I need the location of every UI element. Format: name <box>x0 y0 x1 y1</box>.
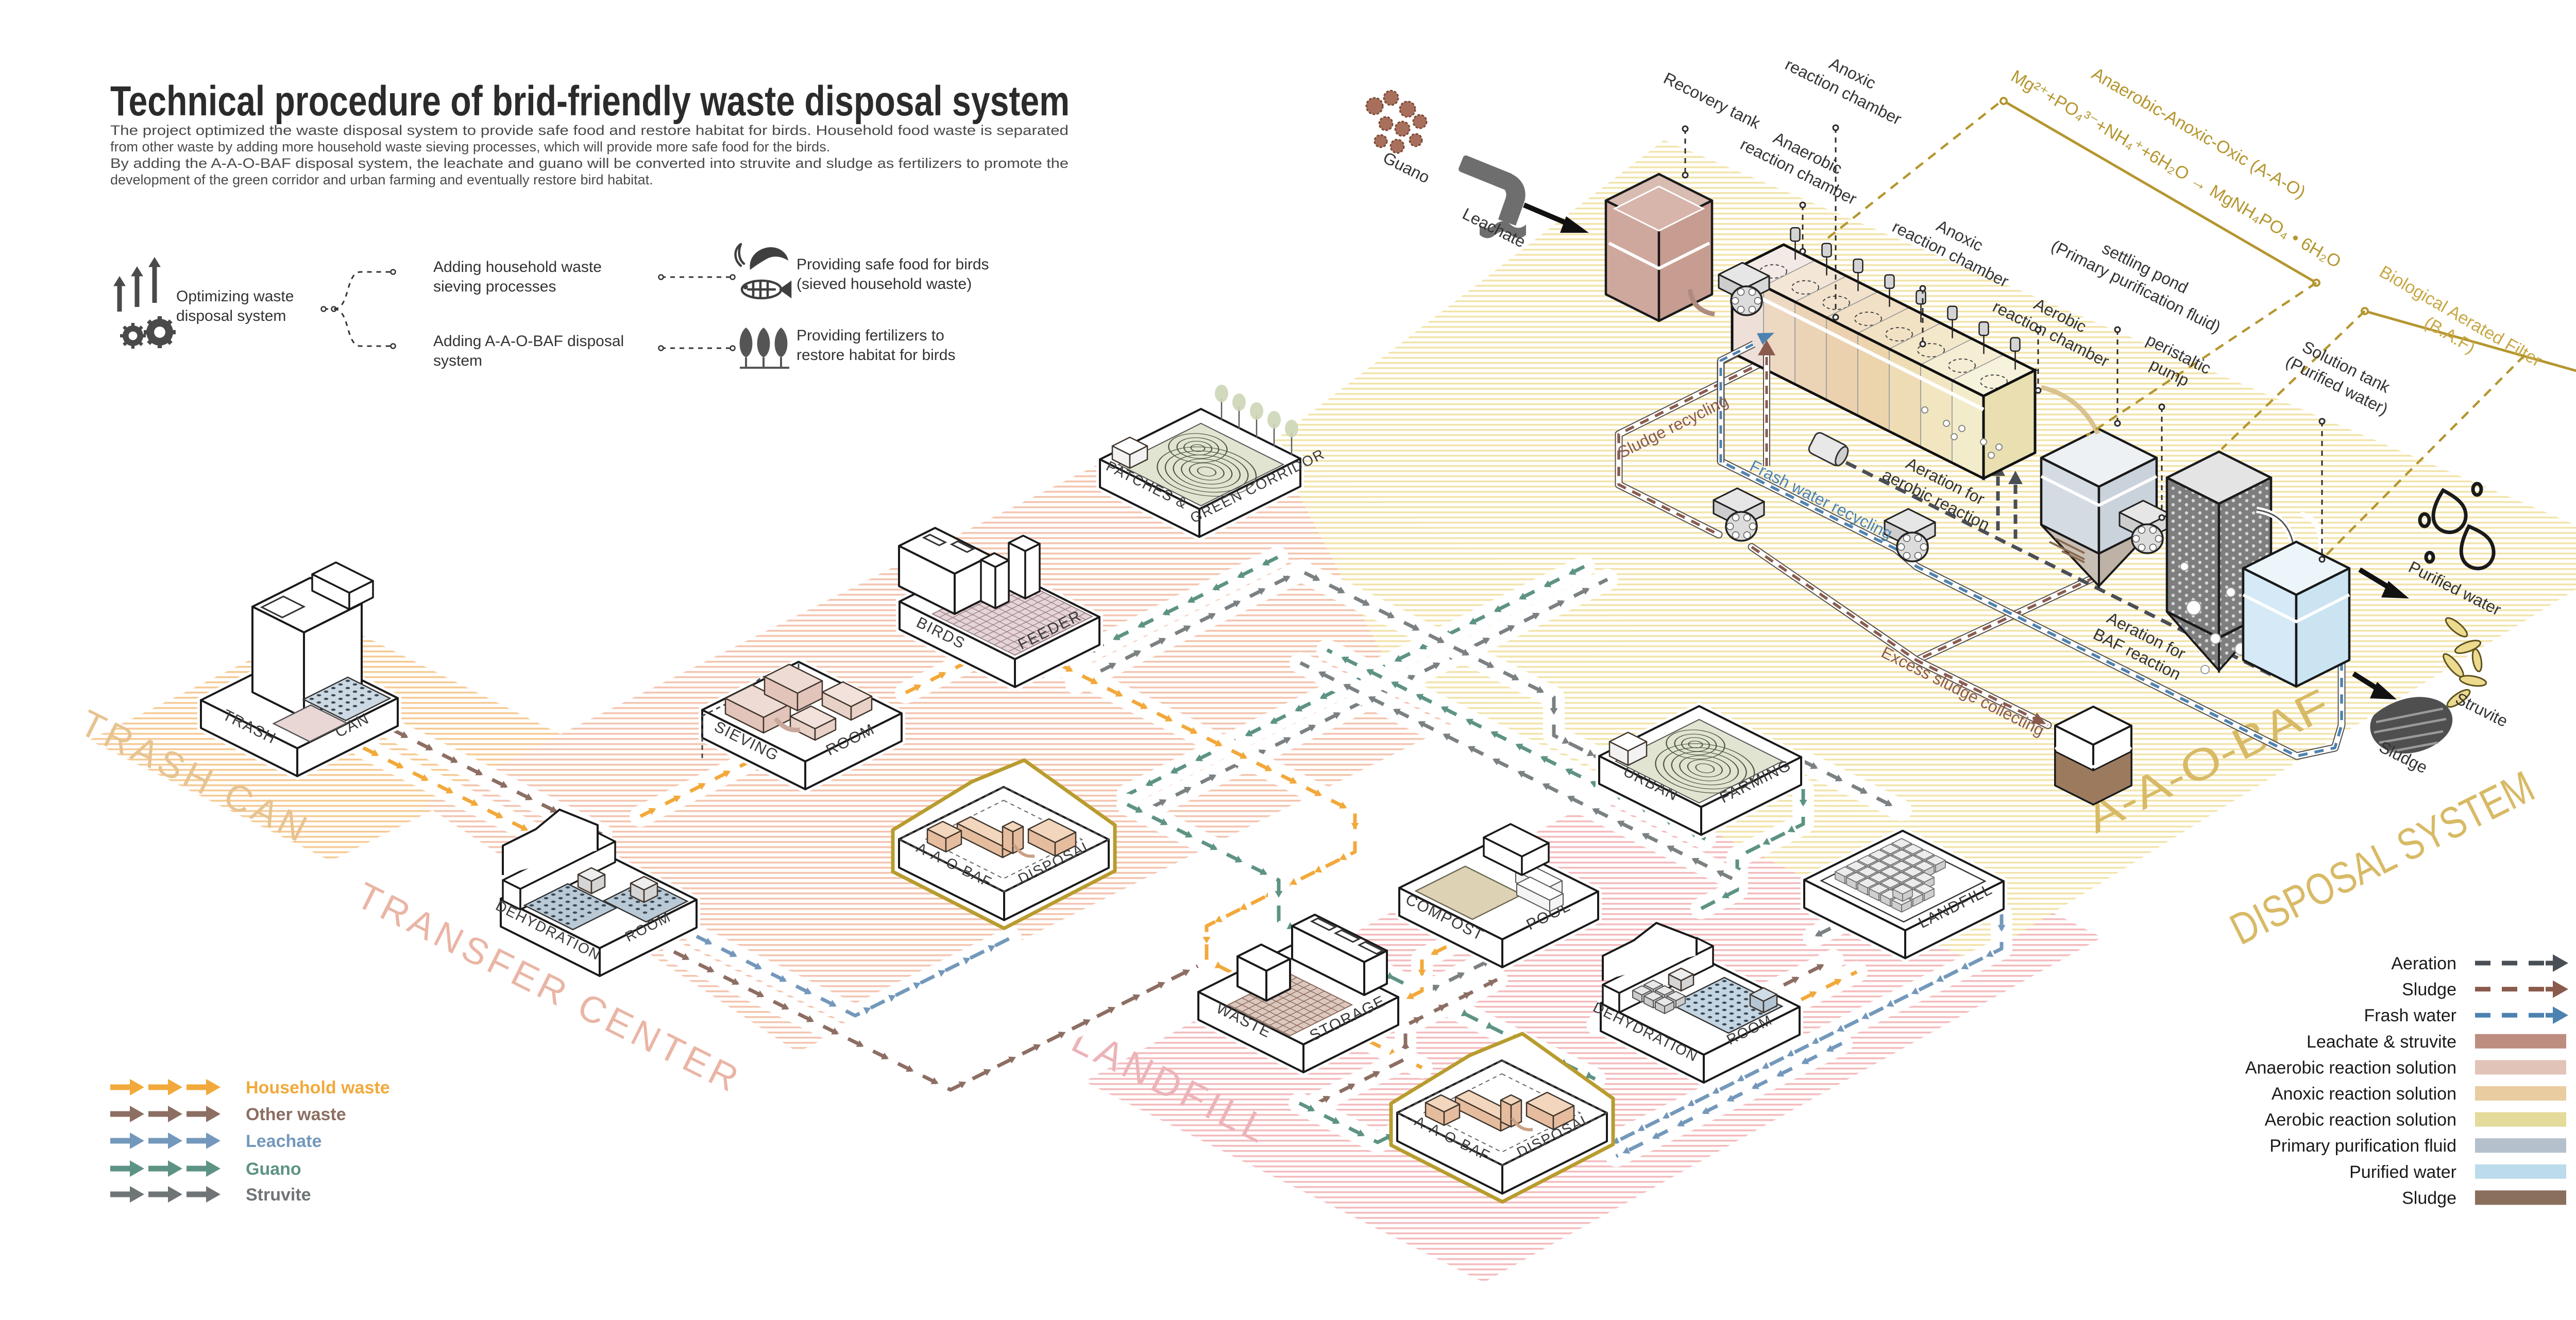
svg-text:Aeration: Aeration <box>2391 954 2456 973</box>
svg-text:Anoxic reaction solution: Anoxic reaction solution <box>2272 1084 2456 1104</box>
svg-text:Providing safe food for birds: Providing safe food for birds <box>796 256 989 273</box>
svg-text:development of the green corri: development of the green corridor and ur… <box>110 172 653 187</box>
svg-text:Sludge: Sludge <box>2402 980 2456 1000</box>
svg-text:Household waste: Household waste <box>246 1078 390 1098</box>
svg-text:from other waste by adding mor: from other waste by adding more househol… <box>110 139 830 155</box>
svg-text:Struvite: Struvite <box>246 1185 311 1205</box>
svg-text:(sieved household waste): (sieved household waste) <box>796 276 972 293</box>
svg-text:Guano: Guano <box>246 1159 301 1179</box>
svg-text:Other waste: Other waste <box>246 1105 346 1124</box>
svg-text:system: system <box>433 352 482 369</box>
svg-text:Anaerobic reaction solution: Anaerobic reaction solution <box>2245 1058 2456 1077</box>
svg-text:The project optimized the wast: The project optimized the waste disposal… <box>110 123 1069 138</box>
svg-text:Primary purification fluid: Primary purification fluid <box>2269 1136 2456 1156</box>
svg-text:disposal system: disposal system <box>176 307 286 324</box>
svg-text:Frash water: Frash water <box>2364 1006 2457 1025</box>
svg-text:Adding household waste: Adding household waste <box>433 259 602 276</box>
svg-text:Adding A-A-O-BAF disposal: Adding A-A-O-BAF disposal <box>433 333 624 350</box>
svg-text:Leachate & struvite: Leachate & struvite <box>2307 1032 2456 1052</box>
svg-text:Aerobic reaction solution: Aerobic reaction solution <box>2265 1110 2456 1130</box>
svg-text:sieving processes: sieving processes <box>433 278 556 295</box>
svg-text:Technical procedure of brid-fr: Technical procedure of brid-friendly was… <box>110 78 1070 125</box>
svg-text:Optimizing waste: Optimizing waste <box>176 288 294 305</box>
svg-text:Sludge: Sludge <box>2402 1188 2456 1208</box>
svg-text:Providing fertilizers to: Providing fertilizers to <box>796 327 944 344</box>
svg-text:Purified water: Purified water <box>2349 1162 2456 1182</box>
svg-text:Leachate: Leachate <box>246 1132 321 1151</box>
svg-text:By adding the A-A-O-BAF dispos: By adding the A-A-O-BAF disposal system,… <box>110 156 1069 171</box>
svg-text:restore habitat for birds: restore habitat for birds <box>796 347 955 364</box>
